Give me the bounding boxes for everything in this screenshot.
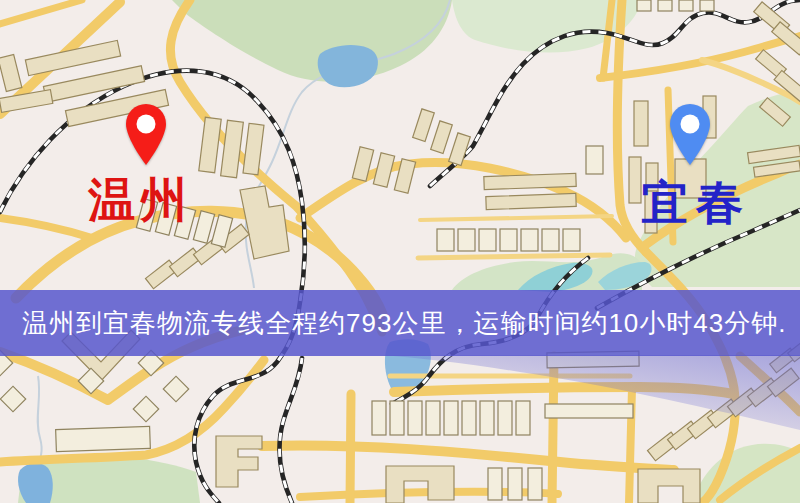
map-canvas [0, 0, 800, 503]
destination-pin[interactable] [668, 101, 712, 167]
origin-pin[interactable] [124, 101, 168, 167]
map-viewport[interactable]: 温州 宜春 温州到宜春物流专线全程约793公里，运输时间约10小时43分钟. [0, 0, 800, 503]
info-banner: 温州到宜春物流专线全程约793公里，运输时间约10小时43分钟. [0, 290, 800, 356]
origin-city-label: 温州 [88, 176, 192, 223]
location-pin-icon [124, 101, 168, 167]
location-pin-icon [668, 101, 712, 167]
destination-city-label: 宜春 [641, 179, 751, 226]
banner-text: 温州到宜春物流专线全程约793公里，运输时间约10小时43分钟. [0, 306, 786, 341]
